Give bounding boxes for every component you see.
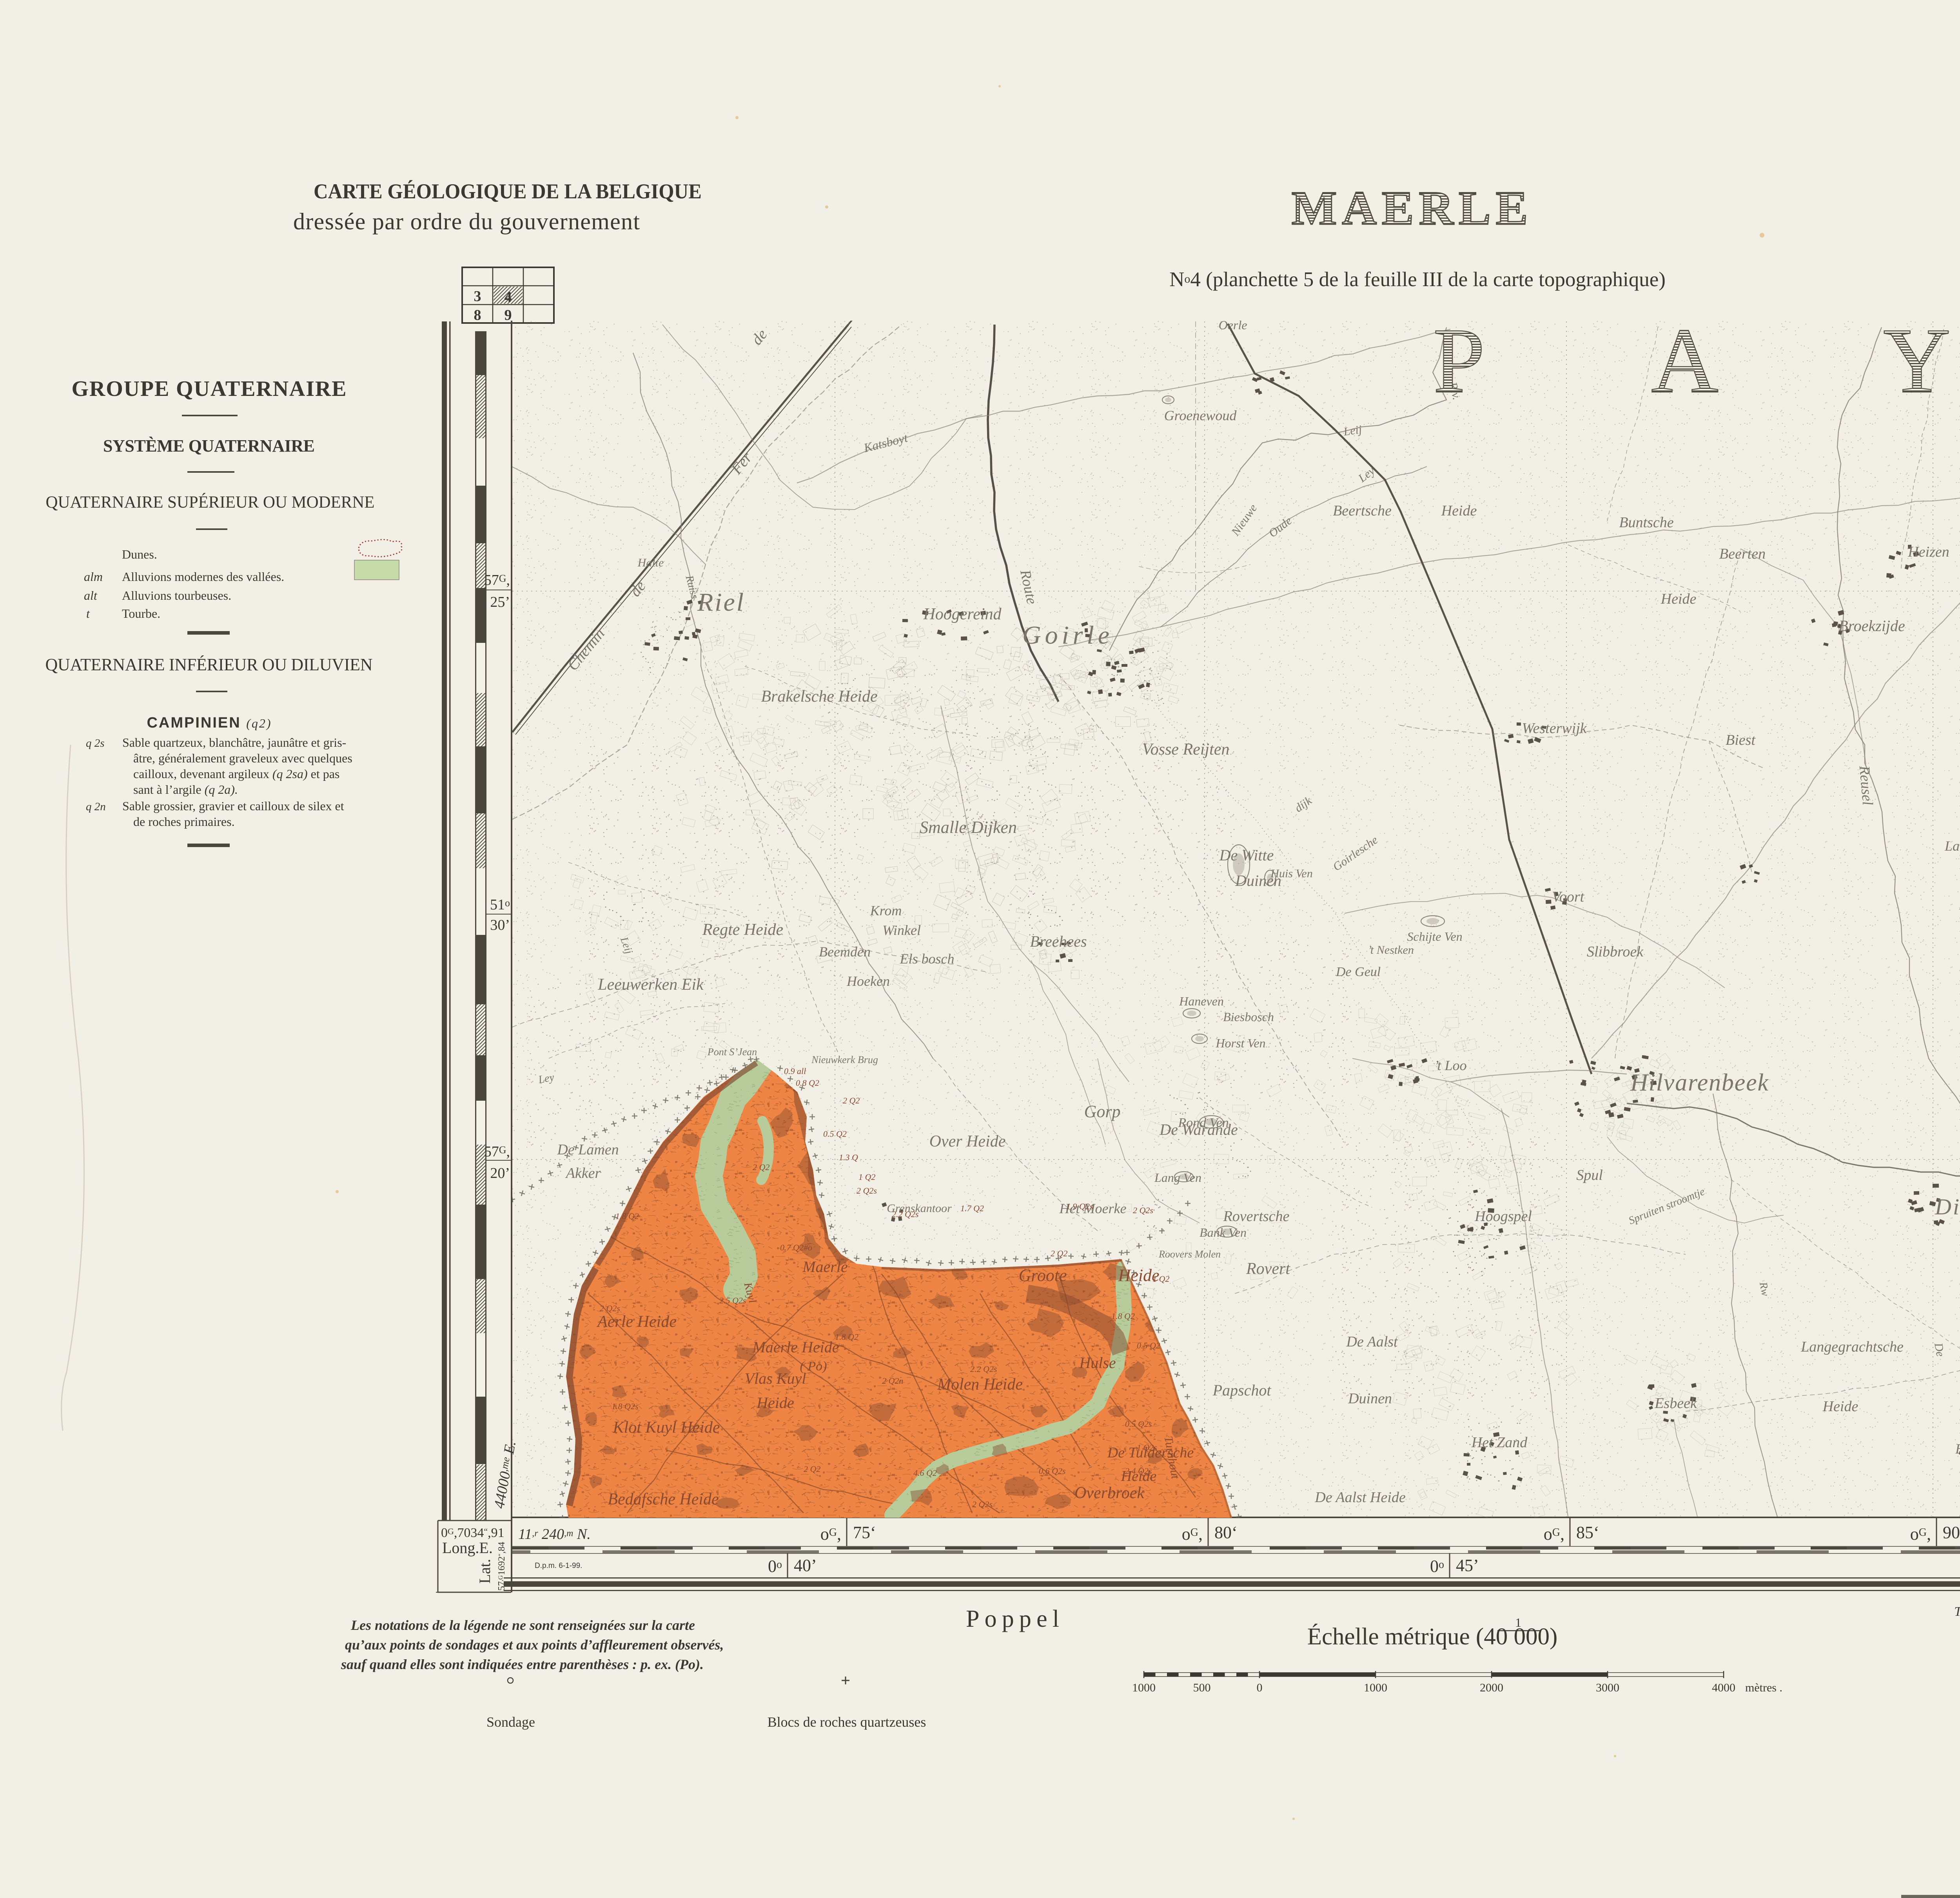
svg-text:Westerwijk: Westerwijk (1522, 720, 1587, 737)
svg-text:Long.E.: Long.E. (442, 1539, 493, 1557)
svg-text:Maerle Heide: Maerle Heide (752, 1338, 839, 1356)
svg-text:2 Q2s: 2 Q2s (682, 1424, 702, 1433)
svg-text:Halte: Halte (637, 556, 664, 569)
svg-text:Slibbroek: Slibbroek (1587, 944, 1644, 960)
svg-text:1000: 1000 (1132, 1681, 1156, 1694)
svg-text:QUATERNAIRE INFÉRIEUR OU DILUV: QUATERNAIRE INFÉRIEUR OU DILUVIEN (45, 655, 373, 674)
svg-text:0.6 Q2s: 0.6 Q2s (1039, 1466, 1065, 1476)
svg-text:1 Q2s: 1 Q2s (1137, 1443, 1157, 1452)
svg-text:CAMPINIEN (q2): CAMPINIEN (q2) (147, 715, 272, 731)
svg-text:4: 4 (505, 289, 512, 305)
svg-text:Esbeek: Esbeek (1654, 1395, 1697, 1412)
svg-text:alt: alt (84, 588, 98, 602)
svg-text:Duinen: Duinen (1348, 1390, 1392, 1407)
svg-text:De Aalst: De Aalst (1346, 1334, 1398, 1350)
svg-text:Biest: Biest (1726, 732, 1756, 748)
svg-text:GROUPE QUATERNAIRE: GROUPE QUATERNAIRE (72, 377, 347, 401)
svg-text:Bank Ven: Bank Ven (1200, 1225, 1247, 1239)
svg-text:De Lamen: De Lamen (557, 1141, 619, 1158)
svg-text:q 2s: q 2s (86, 737, 105, 749)
svg-text:0.9 all: 0.9 all (784, 1066, 806, 1076)
svg-text:Groenewoud: Groenewoud (1164, 408, 1237, 423)
svg-text:2 Q2: 2 Q2 (843, 1096, 860, 1105)
svg-text:CARTE GÉOLOGIQUE DE LA BELGIQU: CARTE GÉOLOGIQUE DE LA BELGIQUE (314, 180, 702, 203)
svg-text:1.3 Q: 1.3 Q (839, 1152, 858, 1162)
svg-text:20’: 20’ (490, 1165, 510, 1181)
svg-text:Voort: Voort (1552, 889, 1585, 905)
svg-text:Diessen: Diessen (1935, 1194, 1960, 1219)
svg-text:Heizen: Heizen (1907, 544, 1949, 560)
svg-text:Akker: Akker (565, 1165, 601, 1181)
svg-text:Lang Ven: Lang Ven (1154, 1170, 1201, 1185)
svg-text:Reusel: Reusel (1856, 765, 1876, 806)
svg-text:Langegrachtsche: Langegrachtsche (1800, 1339, 1904, 1355)
svg-text:Alluvions tourbeuses.: Alluvions tourbeuses. (122, 588, 231, 602)
svg-text:Klot Kuyl Heide: Klot Kuyl Heide (613, 1419, 720, 1437)
svg-text:Biesbosch: Biesbosch (1223, 1010, 1274, 1024)
svg-text:Het Zand: Het Zand (1471, 1434, 1528, 1451)
svg-text:mètres .: mètres . (1745, 1681, 1782, 1694)
svg-text:SYSTÈME QUATERNAIRE: SYSTÈME QUATERNAIRE (103, 436, 315, 455)
svg-text:2000: 2000 (1480, 1681, 1503, 1694)
svg-text:0.7 Q2#o: 0.7 Q2#o (780, 1243, 812, 1252)
svg-text:90‘: 90‘ (1943, 1523, 1960, 1542)
svg-text:Sable grossier, gravier et ca: Sable grossier, gravier et cailloux de s… (122, 799, 344, 813)
svg-text:Smalle Dijken: Smalle Dijken (920, 818, 1017, 837)
svg-text:Rovert: Rovert (1246, 1260, 1290, 1278)
svg-text:2 Q2: 2 Q2 (1051, 1248, 1067, 1258)
svg-text:Heide: Heide (1661, 591, 1697, 607)
svg-text:Vlas Kuyl: Vlas Kuyl (745, 1370, 806, 1387)
svg-text:Blocs de roches quartzeuses: Blocs de roches quartzeuses (768, 1714, 926, 1730)
svg-text:9: 9 (505, 307, 512, 323)
svg-text:Aerle Heide: Aerle Heide (596, 1313, 677, 1331)
svg-text:0.5 Q2: 0.5 Q2 (823, 1129, 847, 1139)
svg-text:80‘: 80‘ (1214, 1523, 1238, 1542)
svg-text:Riel: Riel (697, 588, 744, 617)
svg-text:sauf quand elles sont indiquée: sauf quand elles sont indiquées entre pa… (341, 1657, 704, 1672)
svg-text:Leij: Leij (1342, 423, 1363, 438)
svg-text:Baarschot: Baarschot (1955, 1441, 1960, 1457)
svg-text:Spul: Spul (1576, 1167, 1603, 1183)
svg-text:0.5 Q2: 0.5 Q2 (1137, 1341, 1160, 1350)
svg-text:alm: alm (84, 570, 103, 584)
svg-text:Leeuwerken Eik: Leeuwerken Eik (597, 976, 704, 994)
svg-text:De Aalst Heide: De Aalst Heide (1314, 1489, 1406, 1506)
svg-text:Papschot: Papschot (1212, 1381, 1272, 1399)
svg-text:Brakelsche Heide: Brakelsche Heide (761, 688, 877, 706)
svg-text:D.p.m. 6-1-99.: D.p.m. 6-1-99. (535, 1562, 582, 1570)
svg-text:Beerten: Beerten (1719, 546, 1766, 562)
svg-text:40’: 40’ (794, 1556, 817, 1575)
svg-text:t: t (86, 606, 90, 621)
svg-text:Horst Ven: Horst Ven (1215, 1036, 1265, 1050)
svg-text:11,r 240,m N.: 11,r 240,m N. (518, 1526, 591, 1542)
svg-text:Breehees: Breehees (1030, 933, 1087, 950)
svg-text:1.8 Q2: 1.8 Q2 (835, 1332, 858, 1342)
svg-text:Lat.: Lat. (476, 1559, 494, 1584)
svg-text:500: 500 (1193, 1681, 1211, 1694)
svg-text:Sondage: Sondage (486, 1714, 535, 1730)
svg-text:De Warande: De Warande (1159, 1121, 1238, 1138)
svg-text:2.5 Q2s: 2.5 Q2s (719, 1296, 746, 1305)
svg-text:3: 3 (474, 288, 481, 305)
svg-text:Schijte Ven: Schijte Ven (1407, 929, 1462, 944)
svg-text:2 Q2s: 2 Q2s (1133, 1205, 1153, 1215)
svg-text:2 Q2s: 2 Q2s (857, 1186, 877, 1196)
svg-text:Groote: Groote (1018, 1266, 1067, 1285)
svg-text:âtre, généralement graveleux a: âtre, généralement graveleux avec quelqu… (133, 751, 352, 765)
svg-text:2 Q2n: 2 Q2n (882, 1376, 903, 1386)
svg-text:Heide: Heide (1441, 503, 1477, 519)
svg-text:’t Loo: ’t Loo (1434, 1058, 1466, 1073)
svg-text:57,G1692“,84: 57,G1692“,84 (497, 1542, 507, 1591)
svg-text:Hoogspel: Hoogspel (1474, 1208, 1532, 1225)
svg-text:Dunes.: Dunes. (122, 547, 157, 561)
svg-text:Rw: Rw (1757, 1281, 1771, 1297)
svg-text:Rovertsche: Rovertsche (1223, 1208, 1290, 1225)
svg-text:1000: 1000 (1364, 1681, 1387, 1694)
svg-text:q 2n: q 2n (86, 800, 106, 813)
svg-text:1 Q2: 1 Q2 (858, 1172, 875, 1182)
svg-text:Hulse: Hulse (1079, 1354, 1116, 1372)
svg-text:Beemden: Beemden (819, 944, 871, 960)
svg-text:De Geul: De Geul (1336, 965, 1381, 979)
svg-text:Roovers Molen: Roovers Molen (1158, 1248, 1221, 1260)
svg-text:Y: Y (1883, 309, 1951, 412)
svg-text:0.5 Q2s: 0.5 Q2s (1125, 1419, 1152, 1429)
svg-text:( Po): ( Po) (800, 1359, 827, 1374)
svg-text:2.2 Q2s: 2.2 Q2s (970, 1364, 997, 1374)
svg-text:De Witte: De Witte (1219, 846, 1274, 864)
svg-text:25’: 25’ (490, 594, 510, 610)
svg-text:A: A (1651, 309, 1719, 412)
svg-text:Transport de la gravure en: Transport de la gravure en juin 1895 . _… (1954, 1604, 1960, 1619)
svg-text:Hoogereind: Hoogereind (923, 605, 1002, 623)
svg-text:Molen Heide: Molen Heide (937, 1375, 1023, 1394)
svg-text:2 Q2: 2 Q2 (753, 1162, 769, 1172)
svg-text:Sable quartzeux, blanchâtre, j: Sable quartzeux, blanchâtre, jaunâtre et… (122, 735, 346, 749)
svg-text:Huis Ven: Huis Ven (1270, 867, 1313, 880)
svg-text:Beertsche: Beertsche (1333, 503, 1392, 519)
svg-text:2 Q2: 2 Q2 (804, 1464, 820, 1474)
svg-text:1.8 Q2s: 1.8 Q2s (612, 1401, 638, 1411)
svg-text:Hoeken: Hoeken (846, 973, 890, 989)
svg-text:Gorp: Gorp (1084, 1102, 1121, 1121)
svg-text:cailloux, devenant argileux (: cailloux, devenant argileux (q 2sa) et p… (133, 767, 339, 781)
svg-text:Haneven: Haneven (1179, 994, 1224, 1008)
svg-text:Regte Heide: Regte Heide (702, 921, 783, 939)
svg-text:de roches primaires.: de roches primaires. (133, 815, 235, 829)
svg-text:57G,: 57G, (484, 1143, 510, 1160)
svg-text:4000: 4000 (1712, 1681, 1735, 1694)
svg-text:Over Heide: Over Heide (929, 1132, 1006, 1150)
svg-text:1.9 Q2s: 1.9 Q2s (1066, 1201, 1093, 1211)
svg-text:Krom: Krom (870, 903, 902, 918)
svg-text:45’: 45’ (1456, 1556, 1479, 1575)
svg-text:Lat: Lat (1944, 838, 1960, 854)
svg-text:Bedafsche Heide: Bedafsche Heide (608, 1490, 719, 1508)
svg-text:Tourbe.: Tourbe. (122, 606, 160, 621)
svg-text:Maerle: Maerle (802, 1258, 848, 1276)
svg-text:Pont S’Jean: Pont S’Jean (707, 1046, 757, 1058)
svg-text:Nieuwkerk Brug: Nieuwkerk Brug (811, 1054, 878, 1065)
svg-text:0.8 Q2: 0.8 Q2 (796, 1078, 819, 1088)
svg-text:85‘: 85‘ (1576, 1523, 1599, 1542)
svg-text:1: 1 (1515, 1615, 1521, 1629)
svg-text:1.8 Q2: 1.8 Q2 (615, 1211, 639, 1221)
svg-text:2.4 Q2s: 2.4 Q2s (1125, 1466, 1152, 1476)
svg-text:Buntsche: Buntsche (1619, 514, 1673, 531)
svg-text:qu’aux points de sondages et a: qu’aux points de sondages et aux points … (345, 1637, 724, 1653)
svg-text:Les notations de la légend: Les notations de la légende ne sont rens… (350, 1617, 695, 1633)
svg-text:QUATERNAIRE SUPÉRIEUR OU MODER: QUATERNAIRE SUPÉRIEUR OU MODERNE (46, 493, 375, 512)
svg-text:Els bosch: Els bosch (900, 951, 955, 967)
svg-text:0: 0 (1257, 1681, 1263, 1694)
svg-text:30’: 30’ (490, 917, 510, 933)
svg-text:57G,: 57G, (484, 572, 510, 588)
svg-text:P: P (1433, 309, 1485, 412)
svg-text:2.2 Q2s: 2.2 Q2s (892, 1209, 918, 1219)
svg-text:4.6 Q2: 4.6 Q2 (913, 1468, 937, 1478)
svg-text:Heide: Heide (756, 1394, 794, 1412)
svg-text:2 Q2s: 2 Q2s (600, 1303, 620, 1313)
svg-text:Winkel: Winkel (882, 922, 921, 938)
svg-text:Hilvarenbeek: Hilvarenbeek (1630, 1069, 1769, 1096)
svg-text:Heide: Heide (1822, 1398, 1858, 1415)
svg-text:2 Q2s: 2 Q2s (972, 1499, 993, 1509)
svg-text:8: 8 (474, 307, 481, 323)
svg-text:No4 (planchette 5 de la feui: No4 (planchette 5 de la feuille III de l… (1169, 268, 1666, 291)
svg-text:’t Nestken: ’t Nestken (1368, 944, 1414, 956)
svg-text:sant à l’argile (q 2a).: sant à l’argile (q 2a). (133, 782, 238, 797)
svg-text:Broekzijde: Broekzijde (1838, 617, 1905, 635)
svg-text:Vosse Reijten: Vosse Reijten (1142, 740, 1230, 758)
svg-text:1 Q2: 1 Q2 (1152, 1274, 1169, 1284)
svg-text:1.8 Q2: 1.8 Q2 (1111, 1311, 1135, 1321)
svg-text:dressée par ordre du gouvernem: dressée par ordre du gouvernement (293, 209, 640, 234)
svg-text:3000: 3000 (1596, 1681, 1619, 1694)
svg-text:75‘: 75‘ (853, 1523, 876, 1542)
svg-text:Overbroek: Overbroek (1074, 1484, 1145, 1502)
svg-text:De: De (1932, 1341, 1947, 1357)
svg-text:1.7 Q2: 1.7 Q2 (960, 1203, 984, 1213)
svg-text:Alluvions modernes des vallées: Alluvions modernes des vallées. (122, 570, 284, 584)
